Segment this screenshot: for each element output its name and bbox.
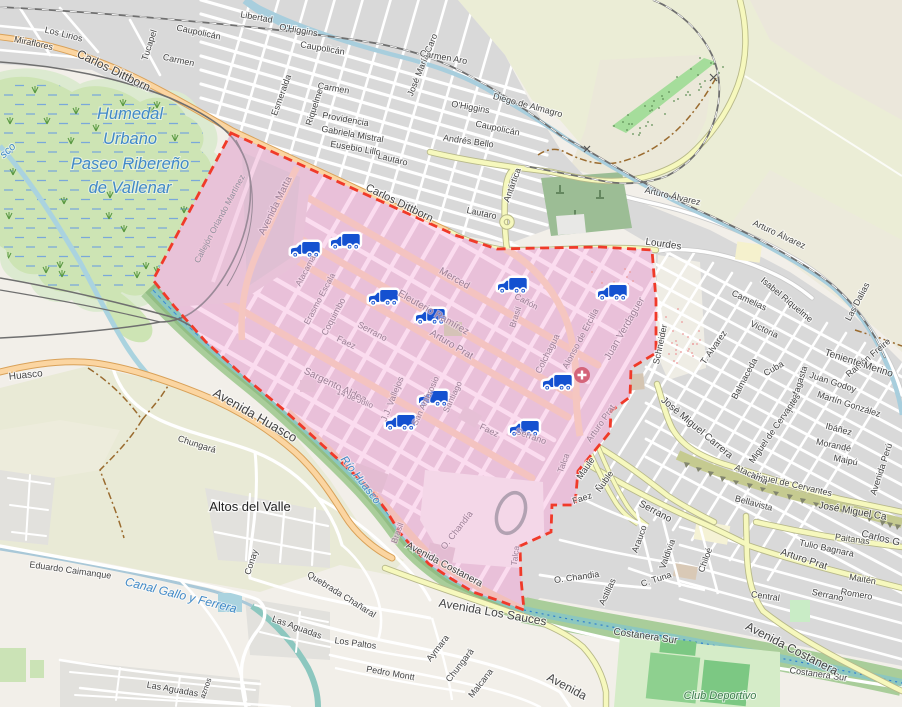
svg-text:Humedal: Humedal [97,105,164,123]
svg-text:de Vallenar: de Vallenar [89,179,173,197]
svg-text:Club Deportivo: Club Deportivo [684,690,757,702]
svg-text:Altos del Valle: Altos del Valle [209,499,290,514]
svg-text:Paseo Ribereño: Paseo Ribereño [71,155,189,173]
svg-text:Urbano: Urbano [103,130,157,148]
